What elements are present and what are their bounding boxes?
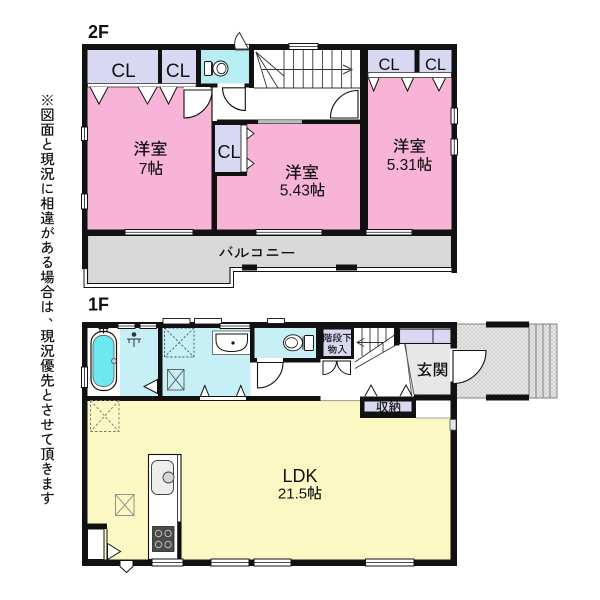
svg-text:LDK: LDK <box>282 466 317 486</box>
svg-text:5.43: 5.43 <box>280 183 310 200</box>
svg-text:CL: CL <box>166 61 190 82</box>
svg-text:5.31: 5.31 <box>387 157 417 174</box>
svg-text:CL: CL <box>378 56 399 74</box>
svg-text:2F: 2F <box>88 22 109 42</box>
svg-text:CL: CL <box>425 56 446 74</box>
svg-text:CL: CL <box>111 61 135 82</box>
svg-text:CL: CL <box>217 142 240 162</box>
svg-text:1F: 1F <box>88 295 109 315</box>
svg-text:7: 7 <box>139 161 148 178</box>
svg-text:21.5: 21.5 <box>278 486 307 503</box>
